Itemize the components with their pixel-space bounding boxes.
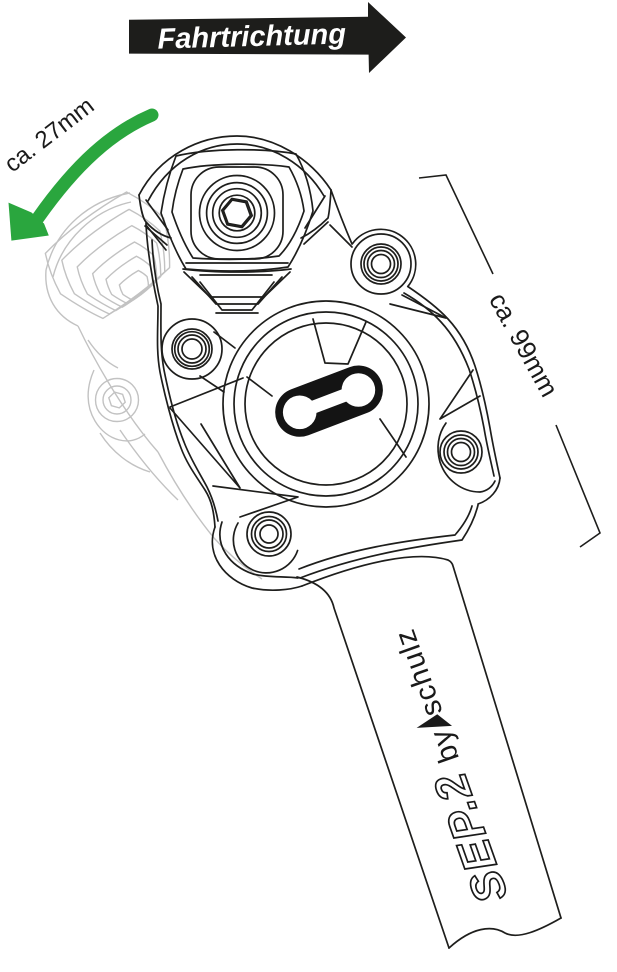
svg-text:Fahrtrichtung: Fahrtrichtung: [157, 18, 347, 55]
